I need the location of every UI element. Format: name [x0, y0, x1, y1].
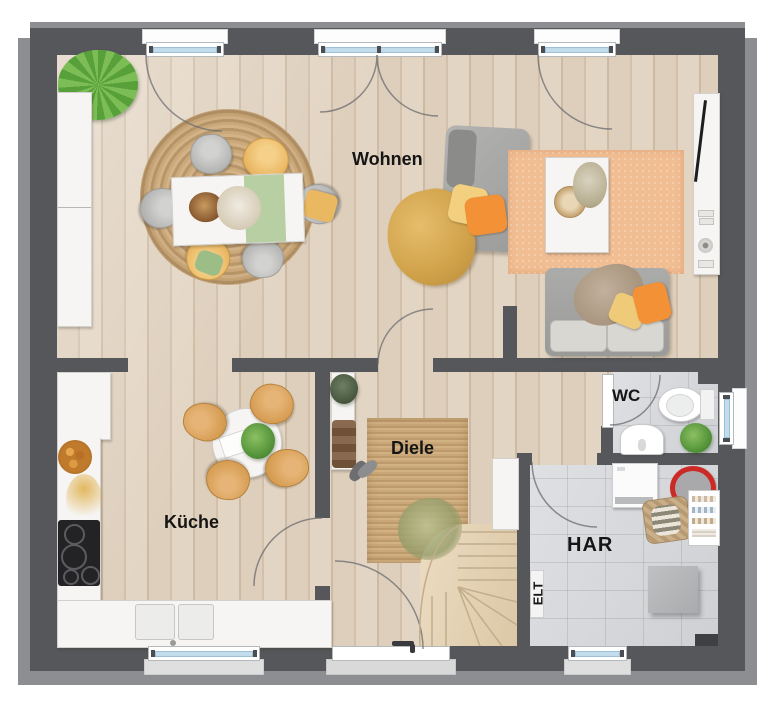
coats — [332, 420, 356, 468]
wall-kueche-diele-upper — [315, 358, 330, 518]
kitchen-sink-drainer — [178, 604, 214, 640]
window-sill — [564, 659, 631, 675]
room-label-kueche: Küche — [164, 512, 219, 533]
room-label-wc: WC — [612, 386, 640, 406]
books — [699, 218, 714, 225]
window-sill — [732, 388, 747, 449]
tall-cabinet — [57, 92, 92, 327]
wardrobe-plant — [330, 374, 358, 404]
sofa — [545, 268, 669, 356]
fruit-bowl — [58, 440, 92, 474]
wc-sink — [620, 424, 664, 455]
floor-plan: Wohnen Küche Diele WC HAR ELT — [0, 0, 775, 704]
room-label-har: HAR — [567, 534, 613, 557]
window — [568, 646, 627, 661]
kitchen-table-plant — [241, 423, 275, 459]
room-label-elt: ELT — [531, 572, 546, 616]
cooktop — [58, 520, 100, 586]
window — [146, 42, 224, 57]
under-stairs-cupboard — [492, 458, 519, 530]
room-label-wohnen: Wohnen — [352, 149, 423, 170]
window-sill — [144, 659, 264, 675]
kitchen-sink — [135, 604, 175, 640]
window — [148, 646, 260, 661]
wall-stub-wc — [698, 372, 718, 384]
coffee-table-plant — [573, 162, 607, 208]
toilet-cistern — [700, 389, 715, 420]
pillow-orange — [464, 193, 509, 236]
towel-shelf — [688, 490, 720, 546]
dining-table — [171, 173, 305, 247]
deco-flowers — [66, 474, 102, 524]
room-label-diele: Diele — [391, 438, 434, 459]
wall-wc-har-left — [517, 453, 532, 465]
tv-lowboard — [693, 93, 720, 275]
utility-box — [648, 566, 698, 613]
tv-icon — [694, 100, 707, 182]
books — [698, 260, 714, 268]
wall-stub-sofa — [503, 306, 517, 358]
books — [698, 210, 714, 217]
wall-wohnen-diele-right — [433, 358, 718, 372]
fridge — [57, 372, 111, 440]
wall-wohnen-kueche — [57, 358, 128, 372]
speaker-icon — [698, 238, 713, 253]
front-door-leaf — [332, 646, 450, 661]
window — [318, 42, 442, 57]
door-handle-icon — [410, 644, 415, 653]
coffee-table — [545, 157, 609, 253]
toilet — [658, 387, 704, 422]
window — [538, 42, 616, 57]
wall-diele-wc — [601, 426, 613, 453]
window — [719, 392, 734, 445]
front-door-threshold — [326, 659, 456, 675]
wall-wohnen-diele-left — [232, 358, 378, 372]
wc-plant — [680, 423, 712, 453]
laundry-basket — [641, 495, 693, 545]
floor-recess — [695, 634, 718, 646]
